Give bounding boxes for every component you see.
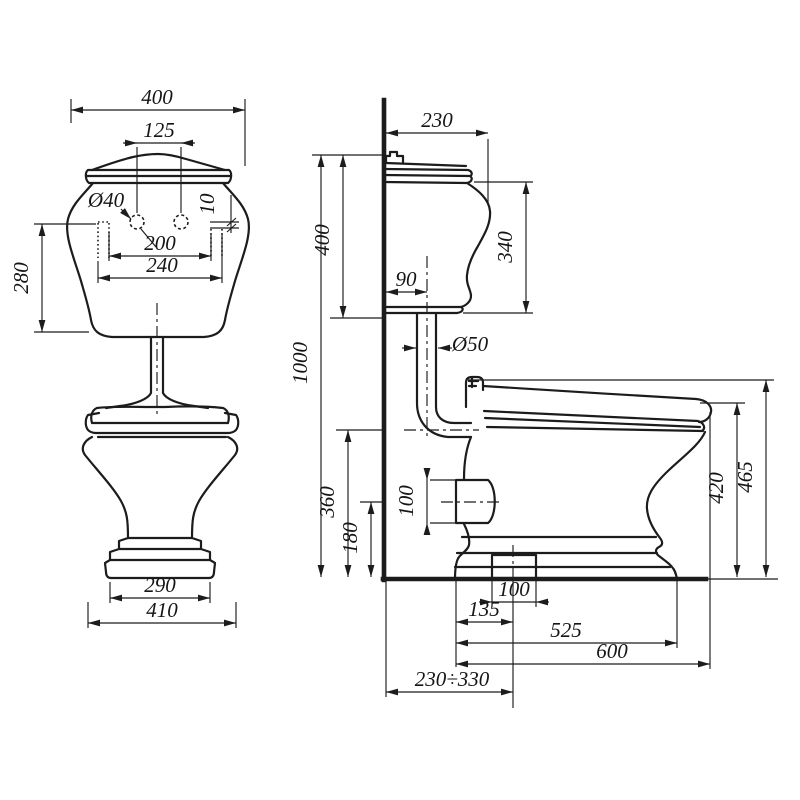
front-view: 400 125 Ø40 10 200 2 bbox=[9, 85, 249, 628]
dim-label-base-depth: 525 bbox=[550, 618, 582, 642]
dim-label-tank-height: 280 bbox=[9, 262, 33, 294]
dim-label-hole-diameter: Ø40 bbox=[87, 188, 125, 212]
dim-label-tank-body-height: 340 bbox=[493, 231, 517, 264]
seat-ring-front bbox=[86, 413, 239, 437]
dim-label-tank-width: 400 bbox=[141, 85, 173, 109]
seat-hinge bbox=[466, 377, 483, 407]
drawing-sheet: 400 125 Ø40 10 200 2 bbox=[0, 0, 800, 800]
dim-pipe-offset: 90 bbox=[386, 267, 427, 292]
bowl-front-right-profile bbox=[192, 437, 237, 578]
bowl-front-base-lines bbox=[110, 538, 210, 578]
left-bracket-hidden bbox=[98, 222, 109, 258]
bowl-front-left-profile bbox=[83, 437, 128, 578]
dim-holes-spacing: 125 bbox=[123, 118, 195, 213]
dim-label-pipe-offset: 90 bbox=[396, 267, 418, 291]
dim-label-rim-height: 465 bbox=[733, 461, 757, 493]
dim-label-outlet-size: 100 bbox=[394, 485, 418, 517]
dim-label-outlet-axis-height: 180 bbox=[338, 522, 362, 554]
dim-label-pipe-diameter: Ø50 bbox=[451, 332, 489, 356]
cistern-side-body bbox=[461, 183, 490, 307]
cistern-front-lid bbox=[92, 154, 225, 170]
dim-label-holes-spacing: 125 bbox=[143, 118, 175, 142]
dim-outlet-axis-height: 180 bbox=[338, 502, 383, 577]
dim-label-tank-depth: 230 bbox=[421, 108, 453, 132]
bowl-side-front-profile bbox=[647, 432, 705, 579]
dim-hole-offset: 10 bbox=[195, 193, 239, 233]
bowl-side-base-lines bbox=[455, 537, 670, 567]
toilet-dimension-drawing: 400 125 Ø40 10 200 2 bbox=[0, 0, 800, 800]
dim-label-seat-height: 420 bbox=[704, 472, 728, 504]
dim-label-inlet-axis-height: 360 bbox=[315, 486, 339, 519]
dim-label-floor-hole-offset: 135 bbox=[468, 597, 500, 621]
dim-tank-body-height: 340 bbox=[463, 182, 533, 313]
right-bracket-hidden bbox=[211, 229, 222, 258]
dim-label-fixing-outer: 240 bbox=[146, 253, 178, 277]
dim-total-depth: 600 bbox=[456, 412, 710, 669]
dim-rim-height: 465 bbox=[468, 380, 774, 577]
left-fixing-hole bbox=[130, 215, 144, 229]
cistern-side-lid bbox=[384, 163, 472, 183]
dim-tank-height: 280 bbox=[9, 224, 96, 332]
dim-label-total-depth: 600 bbox=[596, 639, 628, 663]
dim-label-base-width: 290 bbox=[144, 573, 176, 597]
dim-label-fixing-inner: 200 bbox=[144, 231, 176, 255]
dim-label-bowl-width: 410 bbox=[146, 598, 178, 622]
right-fixing-hole bbox=[174, 215, 188, 229]
cistern-side-lever-knob bbox=[386, 152, 403, 162]
dim-label-outlet-offset-range: 230÷330 bbox=[415, 667, 490, 691]
seat-lid-side bbox=[483, 386, 711, 431]
dim-pipe-diameter: Ø50 bbox=[402, 332, 489, 356]
cistern-side-bottom-band bbox=[384, 307, 463, 313]
cistern-front-lid-band bbox=[86, 170, 231, 183]
bowl-side-back-profile bbox=[455, 437, 471, 579]
side-view: 230 400 1000 340 90 Ø50 bbox=[288, 100, 778, 708]
dim-label-hole-offset: 10 bbox=[195, 193, 219, 215]
dim-label-side-tank-height: 400 bbox=[310, 224, 334, 256]
dim-label-total-height: 1000 bbox=[288, 342, 312, 385]
dim-inlet-axis-height: 360 bbox=[315, 430, 383, 577]
dim-label-floor-hole-size: 100 bbox=[498, 577, 530, 601]
